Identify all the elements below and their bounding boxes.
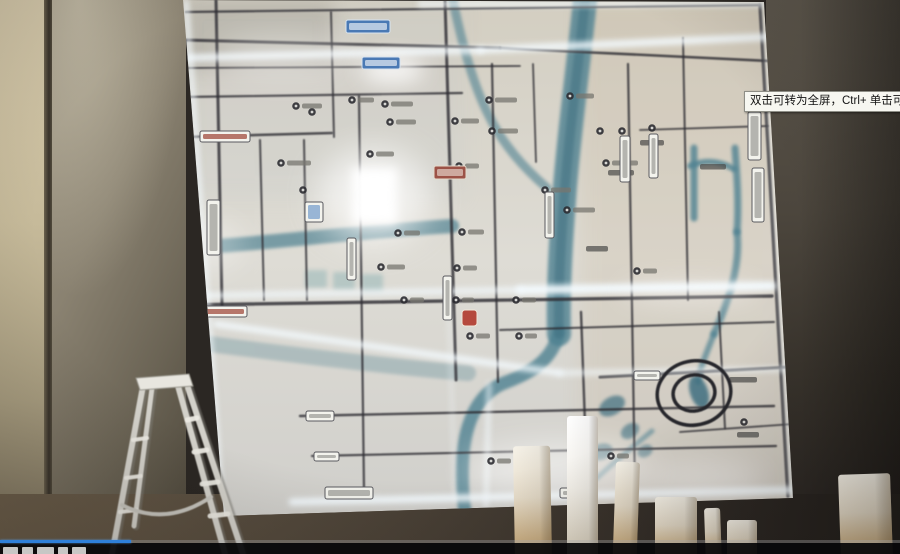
poi-marker-dot (302, 189, 305, 192)
sign-text-smudge (308, 205, 320, 219)
sign-text-smudge (210, 204, 218, 251)
poi-label-smudge (476, 334, 490, 339)
light-bloom (215, 37, 355, 77)
poi-label-smudge (396, 120, 416, 125)
sign-text-smudge (350, 242, 354, 276)
poi-label-smudge (617, 454, 629, 459)
sign-text-smudge (309, 414, 331, 418)
poi-label-smudge (358, 98, 374, 103)
sign-text-smudge (652, 138, 656, 174)
poi-label-smudge (643, 269, 657, 274)
light-bloom (165, 219, 245, 271)
poi-marker-dot (369, 153, 372, 156)
sign-text-smudge (623, 140, 628, 178)
poi-label-smudge (495, 98, 517, 103)
poi-label-smudge (461, 119, 479, 124)
poi-marker-dot (295, 105, 298, 108)
poi-marker-dot (566, 209, 569, 212)
poi-marker-dot (455, 299, 458, 302)
ladder-step (126, 476, 141, 478)
video-player-bar[interactable] (0, 543, 900, 554)
showroom-map-photo (0, 0, 900, 554)
sign-text-smudge (203, 134, 247, 139)
poi-marker-dot (544, 189, 547, 192)
map-text-smudge (586, 246, 608, 252)
poi-marker-dot (490, 460, 493, 463)
foam-post-shade (567, 416, 598, 554)
video-progress-track[interactable] (0, 540, 900, 543)
sign-text-smudge (548, 196, 552, 234)
map-sign (196, 318, 207, 370)
poi-marker-dot (569, 95, 572, 98)
sign-text-smudge (192, 309, 244, 314)
poi-label-smudge (551, 188, 571, 193)
foam-post (567, 416, 598, 554)
poi-label-smudge (404, 231, 420, 236)
red-landmark (462, 310, 477, 326)
map-text-smudge (700, 164, 726, 170)
poi-label-smudge (498, 129, 518, 134)
sign-text-smudge (751, 116, 759, 156)
poi-marker-dot (743, 421, 746, 424)
poi-marker-dot (389, 121, 392, 124)
sign-text-smudge (437, 169, 463, 176)
poi-marker-dot (599, 130, 602, 133)
poi-label-smudge (525, 334, 537, 339)
poi-marker-dot (621, 130, 624, 133)
poi-marker-dot (351, 99, 354, 102)
ladder-step (194, 450, 207, 452)
poi-marker-dot (518, 335, 521, 338)
poi-marker-dot (610, 455, 613, 458)
ghost-glyph (361, 274, 383, 292)
poi-marker-dot (311, 111, 314, 114)
poi-marker-dot (384, 103, 387, 106)
sign-text-smudge (317, 455, 336, 458)
foam-post (513, 446, 552, 554)
map-text-smudge (729, 377, 757, 383)
clipped-caption-glyph (58, 547, 68, 554)
ladder-step (210, 514, 228, 516)
ladder-step (202, 482, 218, 484)
poi-marker-dot (461, 231, 464, 234)
light-bloom (318, 148, 430, 244)
clipped-caption-glyph (37, 547, 54, 554)
poi-marker-dot (280, 162, 283, 165)
sign-text-smudge (365, 60, 397, 66)
clipped-caption-glyph (3, 547, 18, 554)
sign-text-smudge (349, 23, 387, 30)
poi-label-smudge (302, 104, 322, 109)
poi-label-smudge (465, 164, 479, 169)
video-progress-fill[interactable] (0, 540, 131, 543)
poi-marker-dot (380, 266, 383, 269)
poi-marker-dot (403, 299, 406, 302)
ladder-step (187, 418, 197, 420)
video-frame: 双击可转为全屏，Ctrl+ 单击可转为 (0, 0, 900, 554)
poi-marker-dot (488, 99, 491, 102)
sign-text-smudge (755, 172, 762, 218)
poi-marker-dot (636, 270, 639, 273)
poi-marker-dot (515, 299, 518, 302)
poi-label-smudge (462, 298, 474, 303)
poi-marker-dot (651, 127, 654, 130)
poi-marker-dot (491, 130, 494, 133)
poi-marker-dot (469, 335, 472, 338)
poi-marker-dot (605, 162, 608, 165)
ghost-glyph (305, 270, 327, 288)
poi-label-smudge (468, 230, 484, 235)
fullscreen-tooltip: 双击可转为全屏，Ctrl+ 单击可转为 (744, 91, 900, 112)
clipped-caption-glyph (72, 547, 86, 554)
clipped-caption-glyph (22, 547, 33, 554)
poi-label-smudge (576, 94, 594, 99)
poi-label-smudge (573, 208, 595, 213)
poi-marker-dot (397, 232, 400, 235)
poi-label-smudge (376, 152, 394, 157)
map-panel (165, 0, 795, 520)
poi-label-smudge (391, 102, 413, 107)
poi-label-smudge (287, 161, 311, 166)
light-bloom (620, 280, 760, 304)
ladder-step (133, 438, 147, 440)
poi-marker-dot (456, 267, 459, 270)
sign-text-smudge (637, 374, 657, 377)
sign-text-smudge (199, 322, 205, 366)
sign-text-smudge (446, 280, 450, 316)
poi-label-smudge (522, 298, 536, 303)
poi-marker-dot (454, 120, 457, 123)
sign-text-smudge (328, 490, 370, 496)
poi-label-smudge (410, 298, 424, 303)
light-bloom (645, 462, 765, 498)
map-text-smudge (737, 432, 759, 438)
poi-label-smudge (497, 459, 511, 464)
ladder-top-cap (136, 374, 193, 390)
poi-label-smudge (387, 265, 405, 270)
river-path (735, 148, 738, 232)
foam-post-shade (513, 446, 552, 554)
poi-label-smudge (463, 266, 477, 271)
